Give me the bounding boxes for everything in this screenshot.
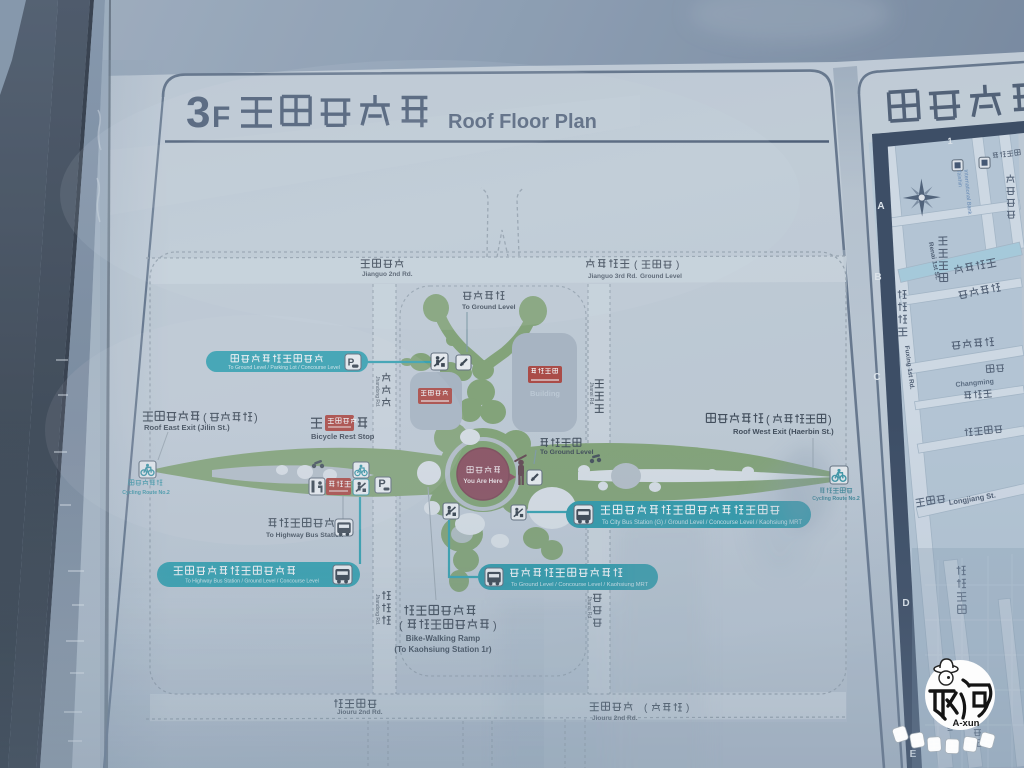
svg-text:A-xun: A-xun bbox=[953, 718, 980, 729]
